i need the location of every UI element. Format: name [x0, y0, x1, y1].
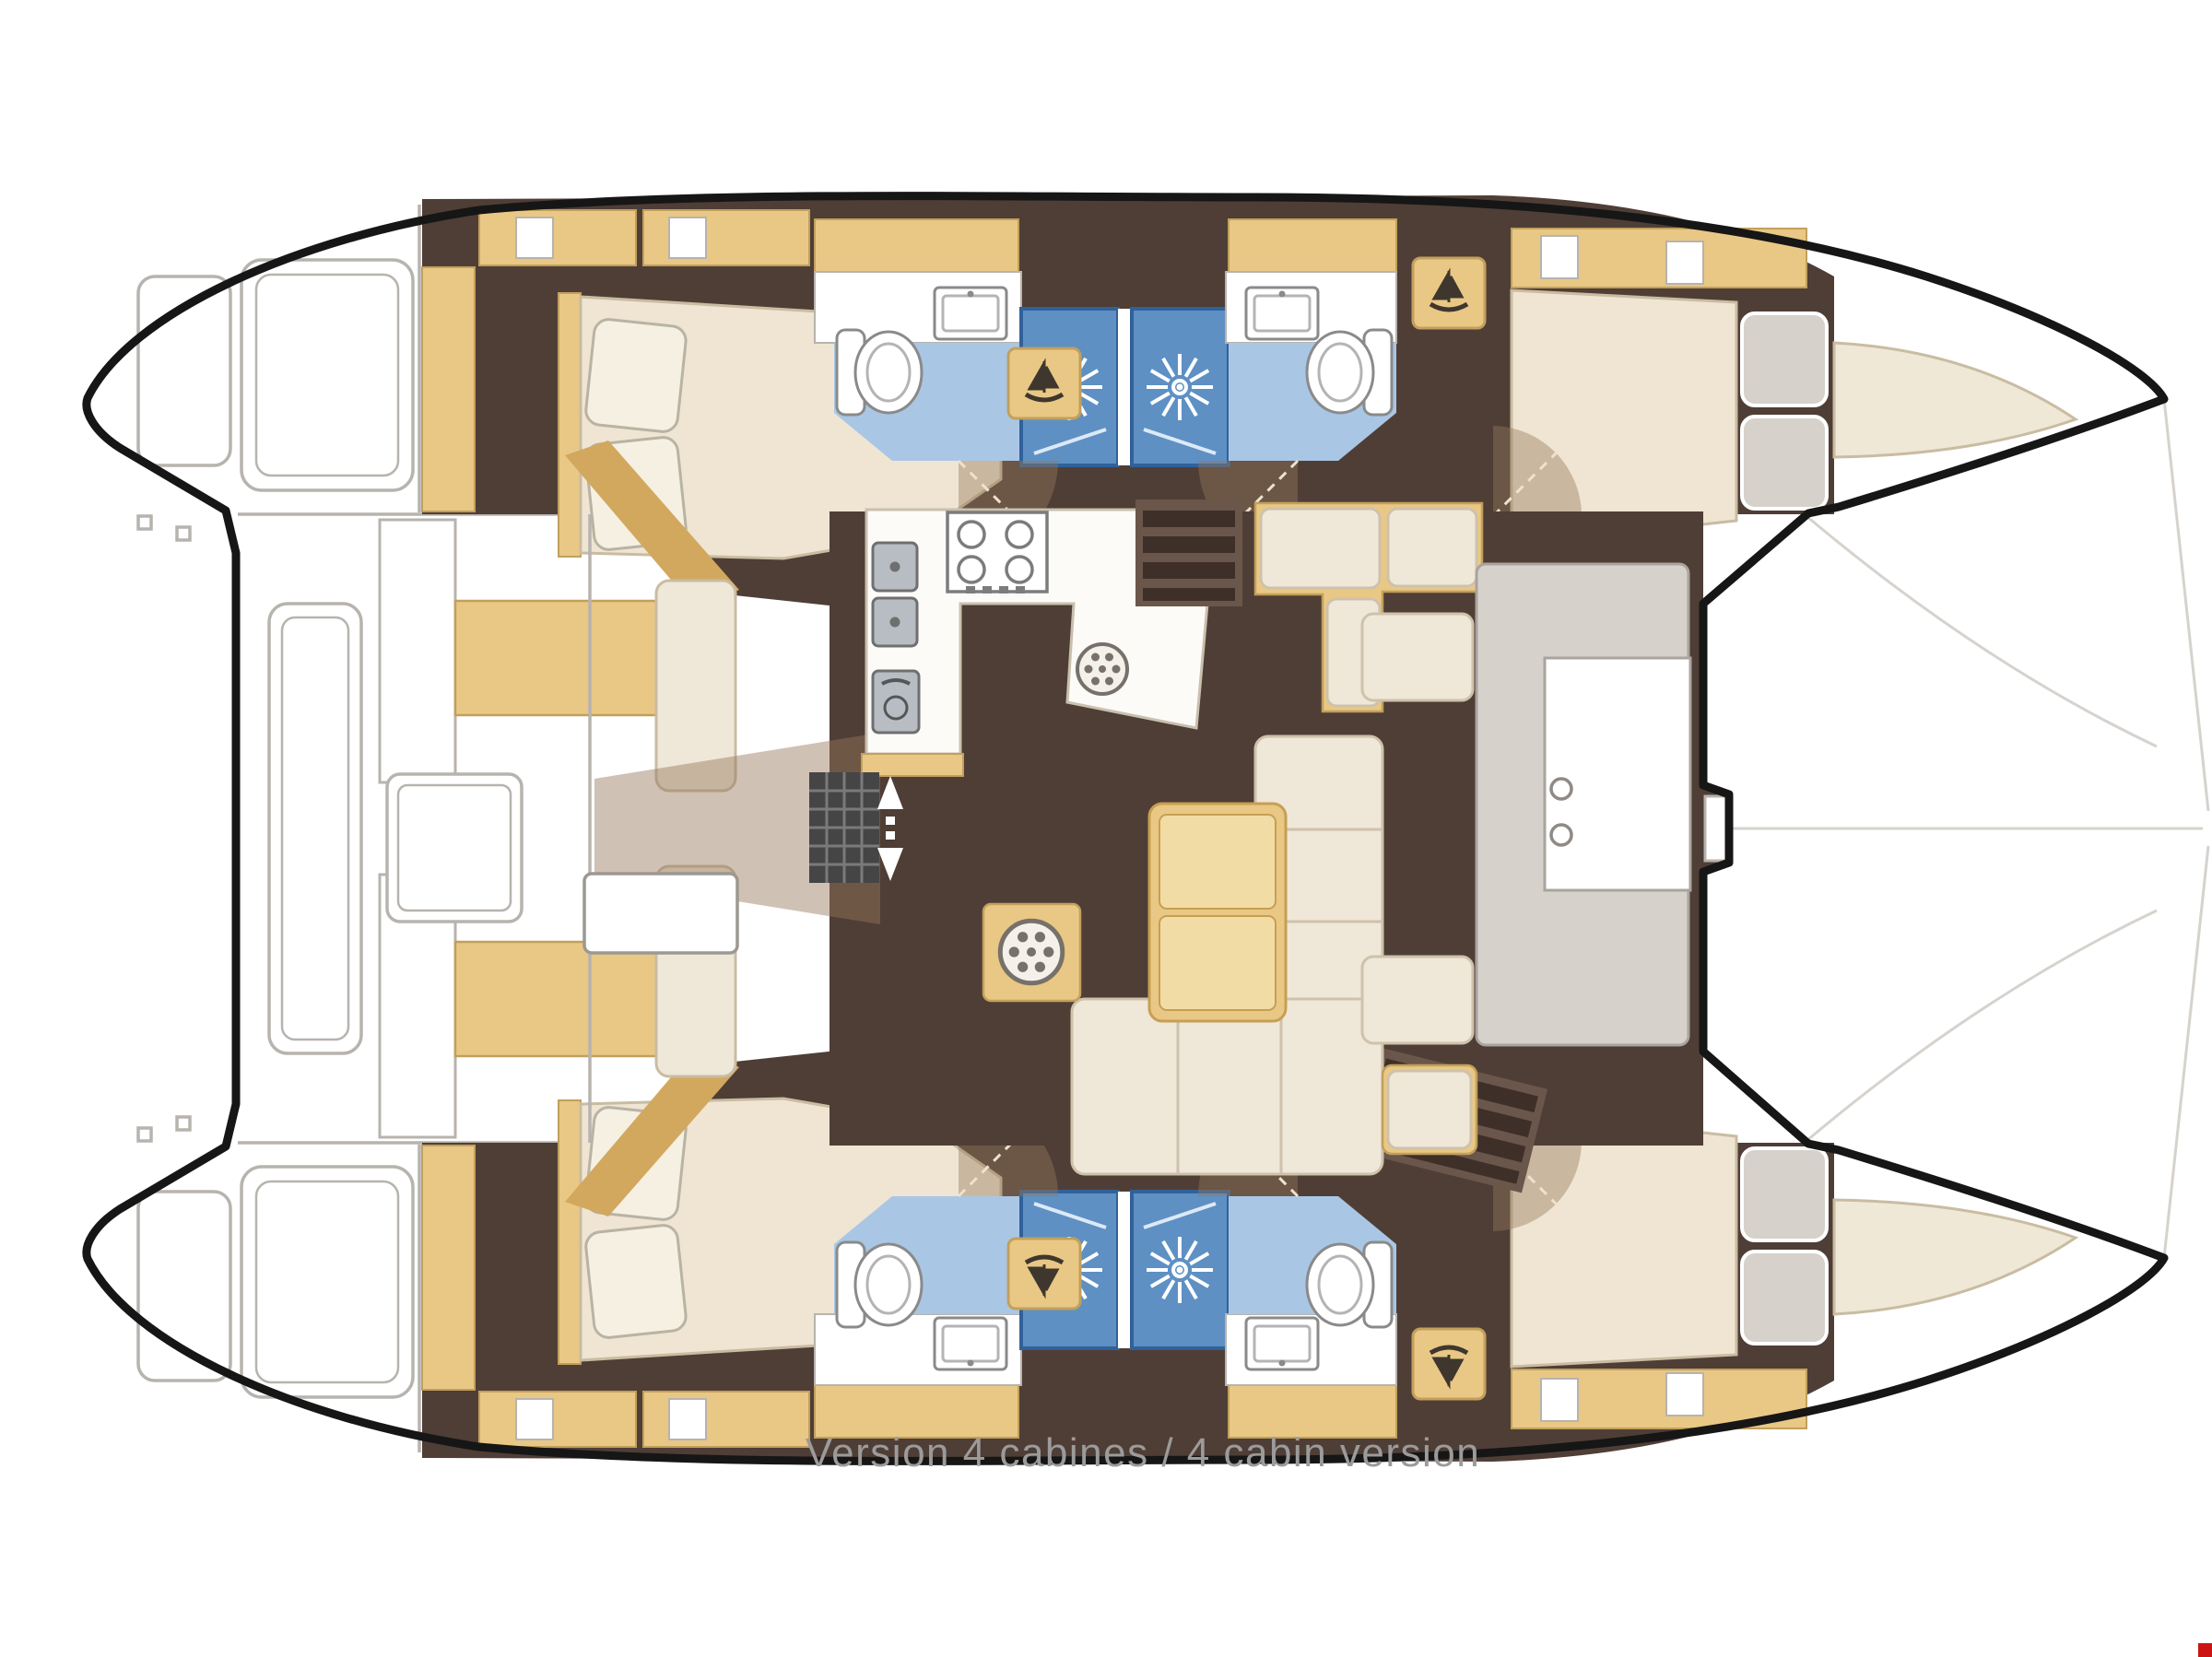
sliding-door [584, 874, 737, 953]
stairs-port-hull [1135, 499, 1242, 606]
sofa-seat-cushions [1072, 999, 1382, 1174]
catamaran-floorplan [0, 0, 2212, 1657]
engine-hatch-grid-icon [809, 772, 879, 883]
fwd-cockpit-door [1705, 796, 1727, 861]
nav-desk-cutout [1545, 658, 1690, 890]
oven-icon [873, 671, 919, 733]
nav-station [1477, 564, 1690, 1045]
floorplan-page: Version 4 cabines / 4 cabin version [0, 0, 2212, 1657]
stove-icon [947, 512, 1047, 593]
saloon-table [1149, 804, 1286, 1021]
brand-corner-mark [2198, 1643, 2212, 1657]
caption: Version 4 cabines / 4 cabin version [682, 1430, 1604, 1476]
floor-hatch [983, 904, 1080, 1001]
